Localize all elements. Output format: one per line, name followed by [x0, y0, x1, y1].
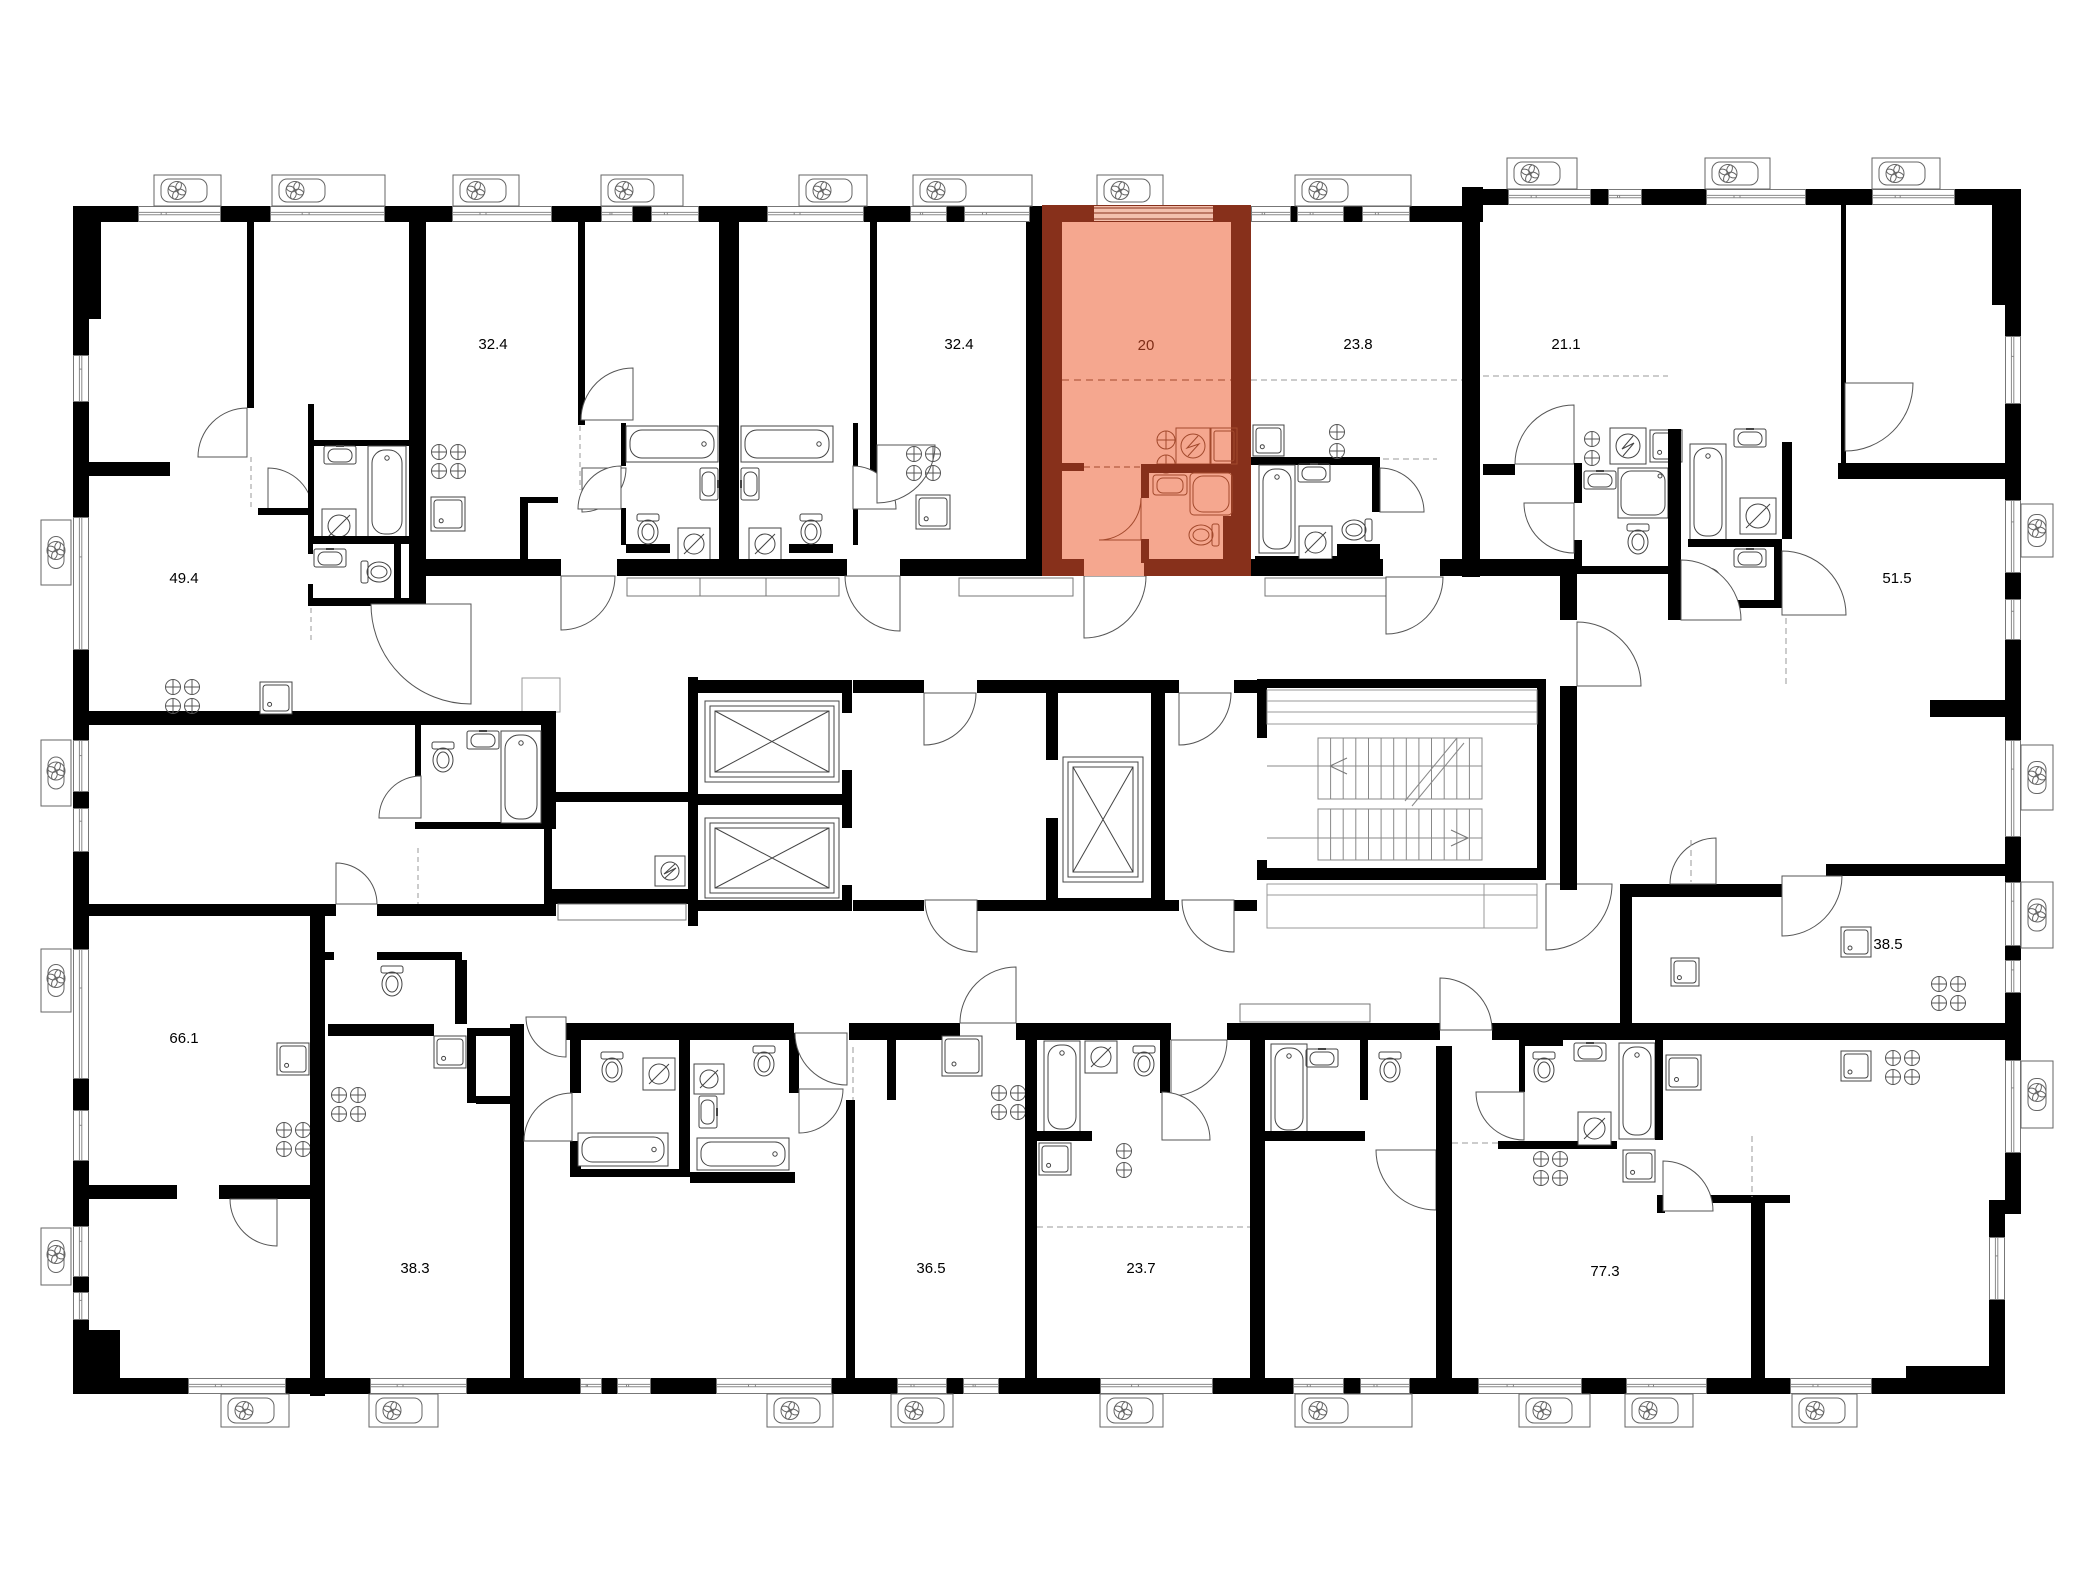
svg-text:38.5: 38.5	[1873, 936, 1902, 953]
svg-text:36.5: 36.5	[916, 1260, 945, 1277]
svg-text:32.4: 32.4	[478, 336, 507, 353]
svg-text:21.1: 21.1	[1551, 336, 1580, 353]
svg-text:23.8: 23.8	[1343, 336, 1372, 353]
svg-text:38.3: 38.3	[400, 1260, 429, 1277]
svg-text:20: 20	[1138, 337, 1155, 354]
svg-text:49.4: 49.4	[169, 570, 198, 587]
svg-text:32.4: 32.4	[944, 336, 973, 353]
svg-text:66.1: 66.1	[169, 1030, 198, 1047]
svg-text:23.7: 23.7	[1126, 1260, 1155, 1277]
svg-text:77.3: 77.3	[1590, 1263, 1619, 1280]
svg-text:51.5: 51.5	[1882, 570, 1911, 587]
